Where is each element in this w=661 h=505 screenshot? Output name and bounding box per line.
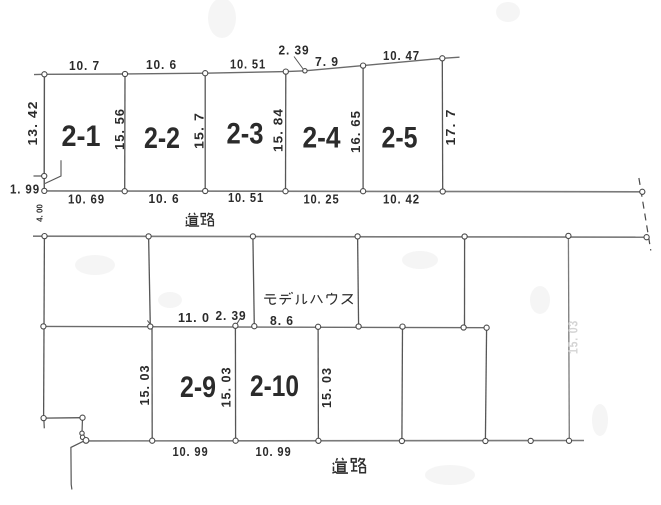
svg-text:2-3: 2-3 — [227, 118, 264, 151]
svg-text:1. 99: 1. 99 — [10, 182, 40, 197]
svg-text:8. 6: 8. 6 — [270, 313, 294, 328]
svg-text:10. 99: 10. 99 — [173, 444, 209, 459]
svg-text:2-1: 2-1 — [62, 120, 101, 153]
svg-text:10. 25: 10. 25 — [304, 192, 340, 207]
svg-text:10. 6: 10. 6 — [149, 191, 180, 206]
svg-text:15. 03: 15. 03 — [319, 367, 334, 408]
svg-text:11. 0: 11. 0 — [178, 310, 210, 325]
svg-text:10. 69: 10. 69 — [68, 192, 105, 207]
svg-text:2. 39: 2. 39 — [279, 43, 310, 58]
svg-text:2-10: 2-10 — [250, 370, 299, 403]
svg-text:10. 7: 10. 7 — [69, 58, 100, 73]
svg-text:15. 84: 15. 84 — [271, 108, 286, 152]
svg-text:15. 03: 15. 03 — [219, 367, 234, 408]
svg-text:10. 47: 10. 47 — [383, 48, 420, 63]
svg-text:13. 42: 13. 42 — [25, 101, 40, 146]
svg-text:10. 42: 10. 42 — [383, 192, 420, 207]
svg-text:15. 03: 15. 03 — [566, 320, 581, 354]
svg-text:7. 9: 7. 9 — [315, 54, 339, 69]
svg-text:15. 7: 15. 7 — [192, 112, 207, 149]
svg-text:10. 51: 10. 51 — [230, 57, 266, 72]
svg-text:2-2: 2-2 — [144, 122, 180, 155]
svg-text:10. 6: 10. 6 — [146, 57, 177, 72]
svg-text:2-9: 2-9 — [180, 371, 216, 404]
svg-text:15. 56: 15. 56 — [112, 108, 127, 150]
svg-text:2. 39: 2. 39 — [216, 308, 247, 323]
svg-text:15. 03: 15. 03 — [137, 365, 152, 406]
svg-text:17. 7: 17. 7 — [443, 109, 458, 146]
svg-text:2-5: 2-5 — [382, 122, 418, 155]
svg-text:2-4: 2-4 — [303, 122, 341, 155]
svg-text:16. 65: 16. 65 — [348, 110, 363, 153]
svg-text:10. 51: 10. 51 — [228, 190, 264, 205]
svg-text:4. 00: 4. 00 — [36, 204, 45, 222]
svg-text:10. 99: 10. 99 — [256, 444, 292, 459]
